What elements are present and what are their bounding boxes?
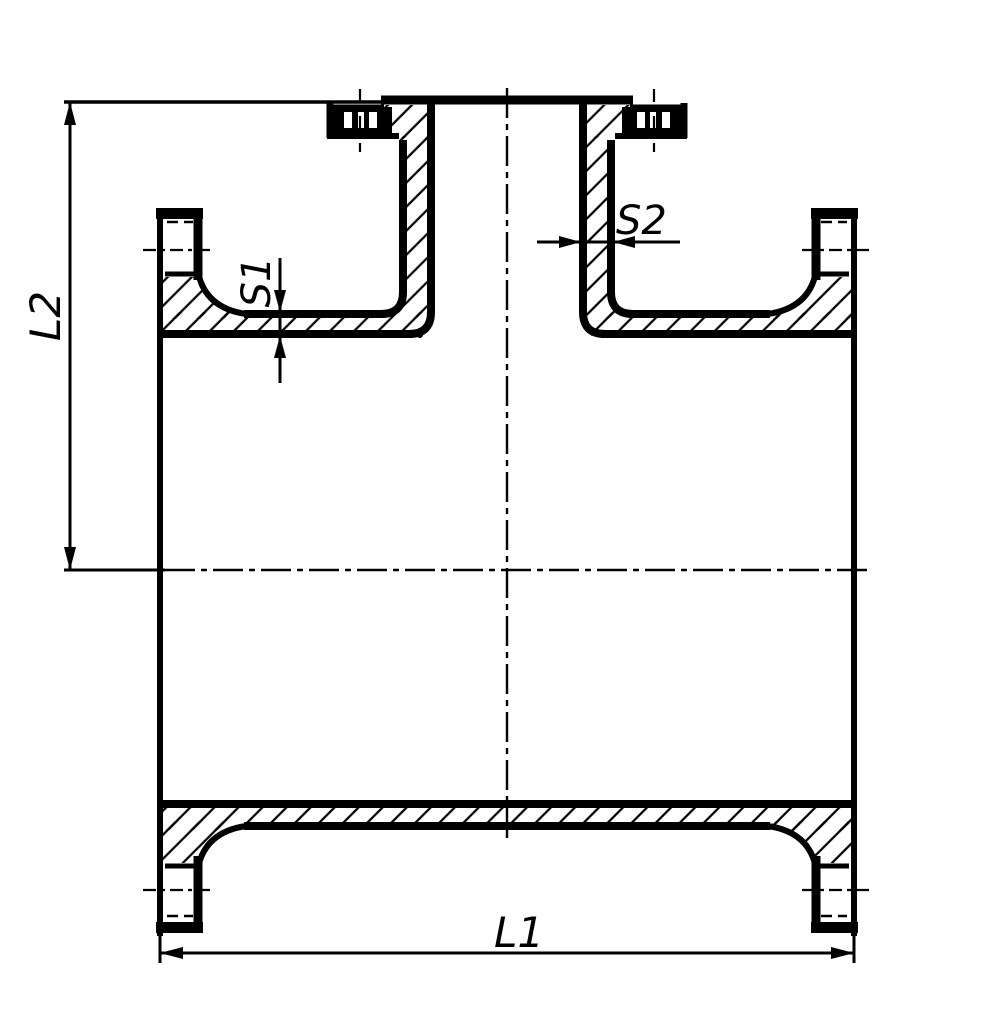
s2-label: S2 <box>616 198 667 244</box>
technical-drawing: L2 L1 S1 S2 <box>0 0 985 1024</box>
bolt-hole-slot <box>344 112 352 128</box>
bolt-hole-slot <box>369 112 377 128</box>
drawing-background <box>0 0 985 1024</box>
l1-label: L1 <box>494 908 544 957</box>
drawing-canvas: L2 L1 S1 S2 <box>0 0 985 1024</box>
bolt-hole-slot <box>662 112 670 128</box>
s1-label: S1 <box>234 257 280 308</box>
l2-label: L2 <box>21 291 70 341</box>
bolt-hole-slot <box>637 112 645 128</box>
